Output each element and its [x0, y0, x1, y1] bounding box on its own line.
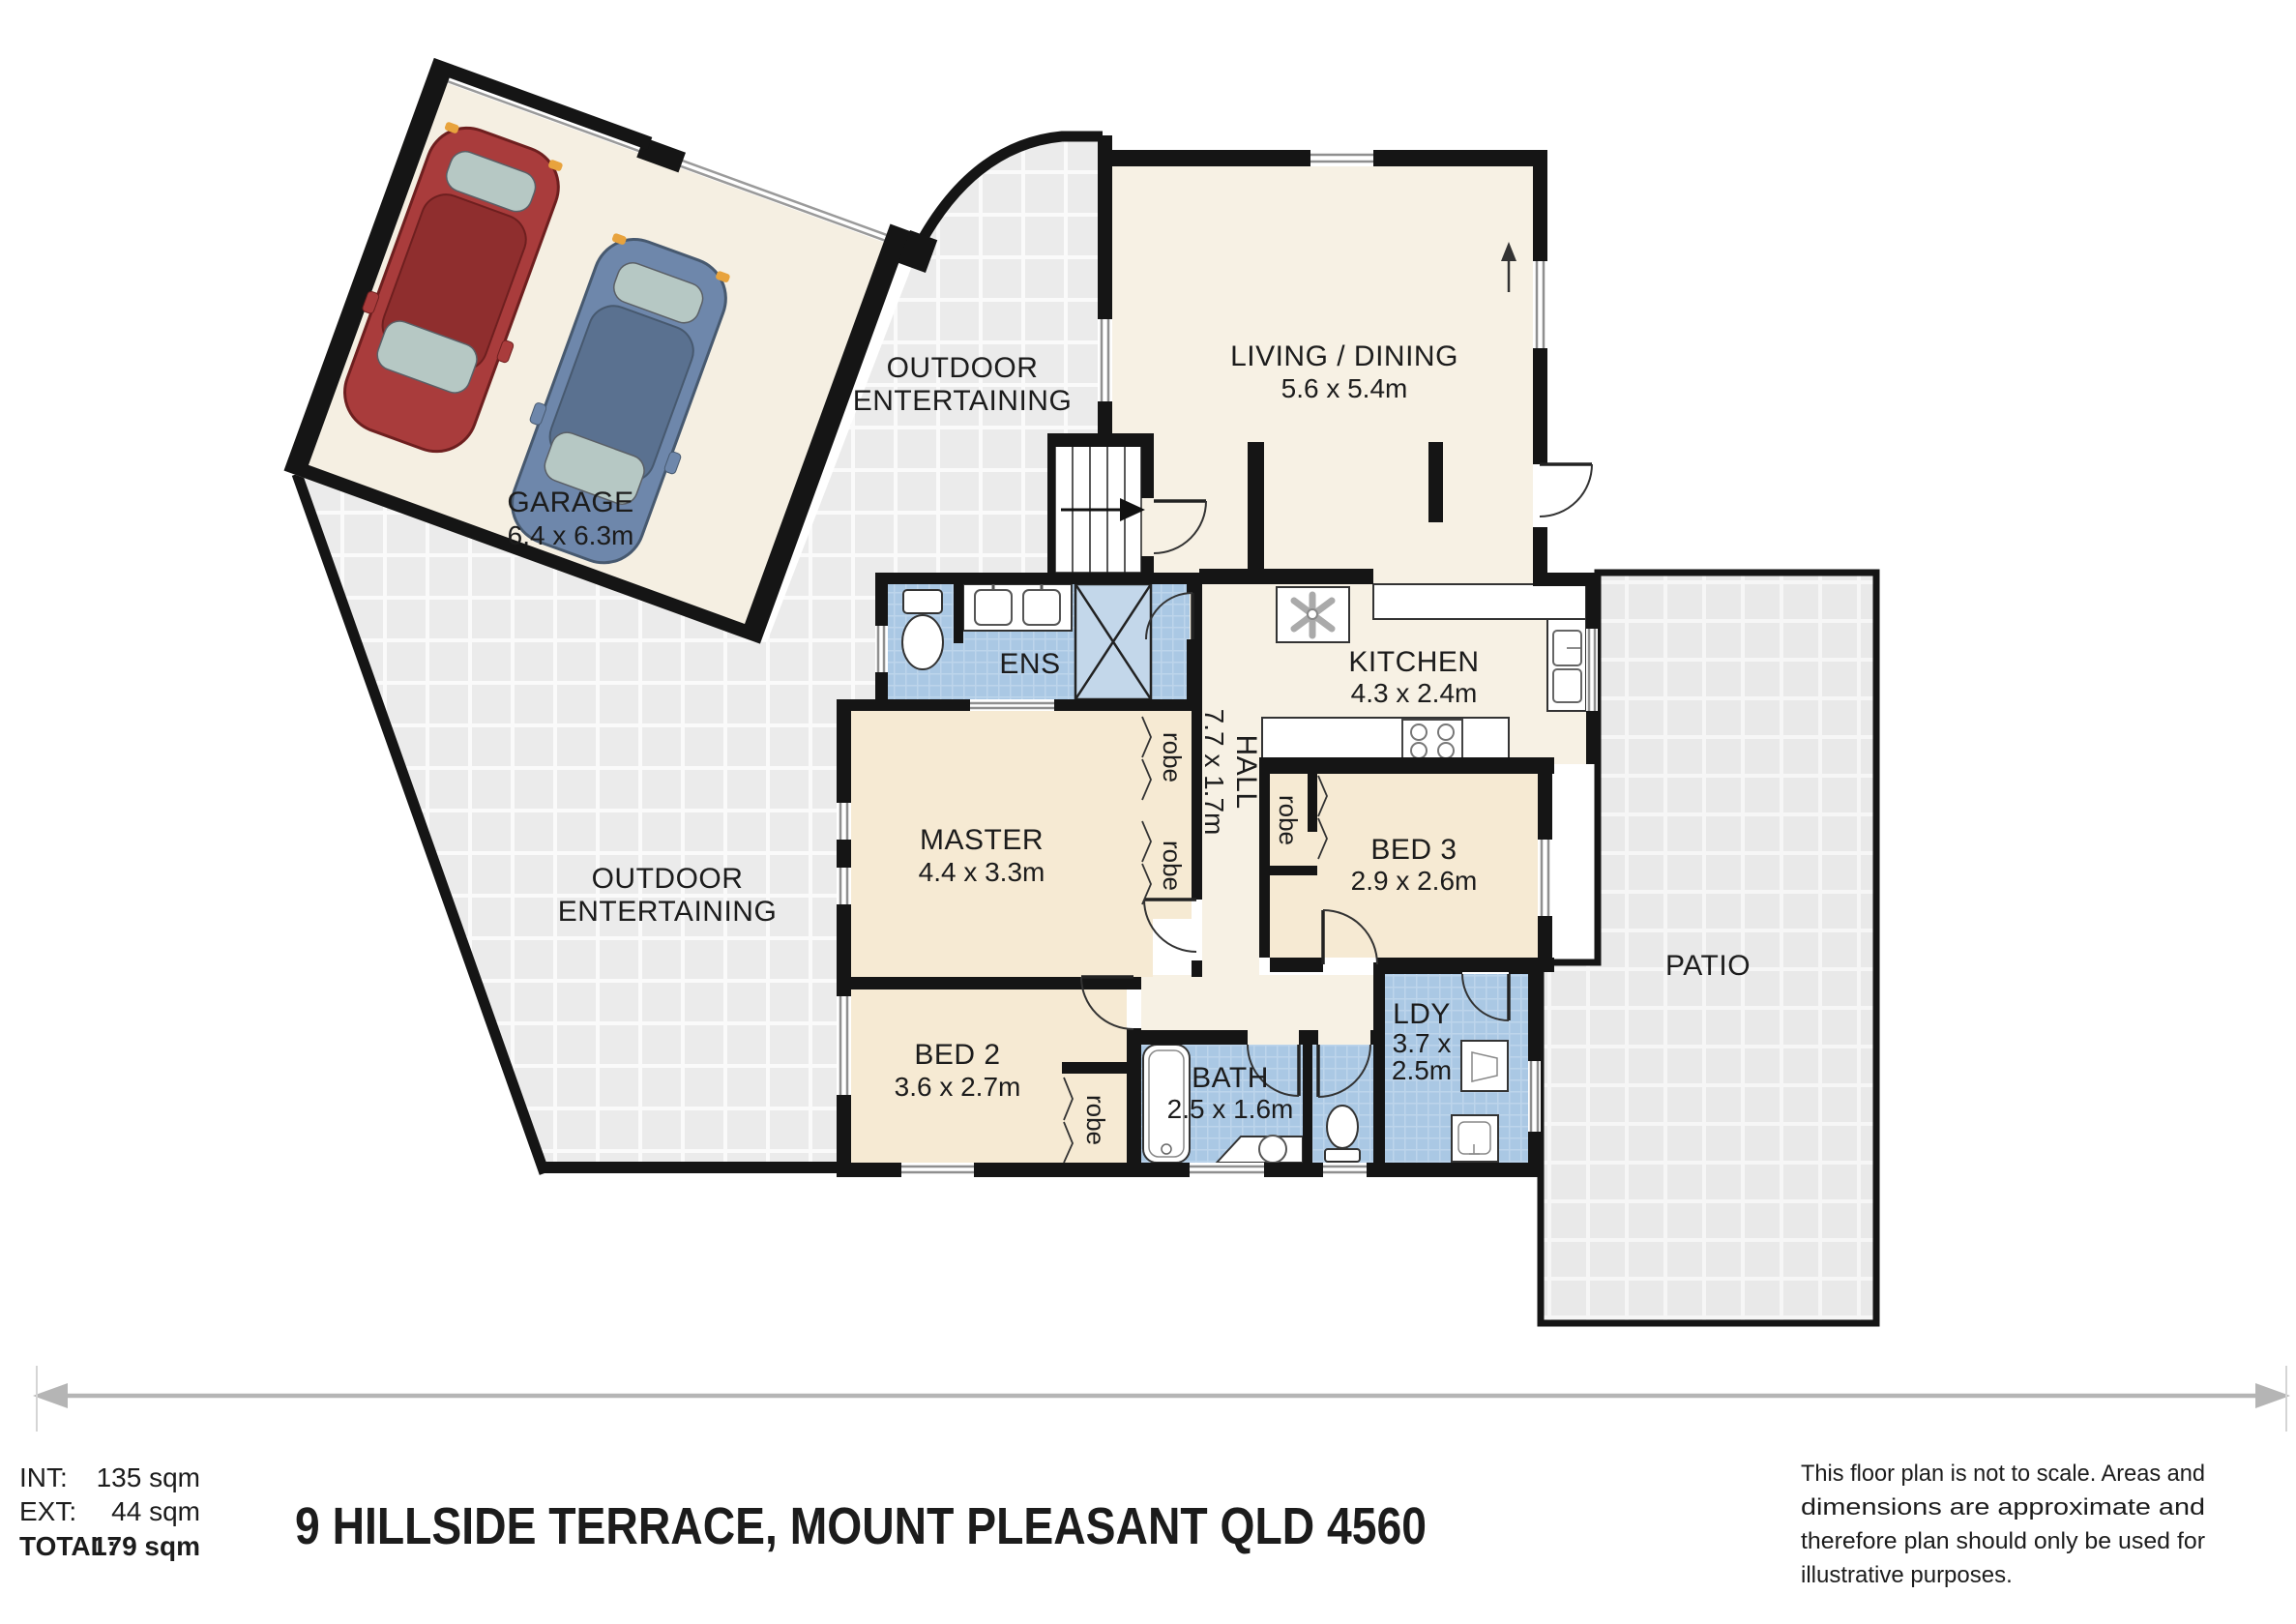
page-title: 9 HILLSIDE TERRACE, MOUNT PLEASANT QLD 4… — [295, 1497, 1427, 1555]
ensuite-label: ENS — [999, 648, 1060, 680]
patio-door-swing — [1540, 464, 1592, 517]
window — [875, 626, 888, 672]
window — [837, 996, 851, 1095]
bed3-robe-label: robe — [1274, 795, 1303, 845]
arrow-right-icon — [2255, 1383, 2290, 1408]
bed2-label: BED 2 — [914, 1039, 1000, 1071]
floor-plan: GARAGE 6.4 x 6.3m OUTDOOR ENTERTAINING O… — [0, 0, 2296, 1624]
int-value: 135 sqm — [97, 1462, 200, 1492]
garage-dims: 6.4 x 6.3m — [508, 520, 634, 550]
outdoor-top-label-line2: ENTERTAINING — [853, 385, 1073, 417]
master-robe2-label: robe — [1158, 841, 1187, 891]
ext-value: 44 sqm — [111, 1496, 200, 1526]
disclaimer-line3: therefore plan should only be used for — [1801, 1528, 2205, 1554]
window — [837, 803, 851, 840]
living-dims: 5.6 x 5.4m — [1281, 373, 1408, 403]
window — [1586, 629, 1598, 711]
living-label: LIVING / DINING — [1230, 340, 1458, 372]
area-summary: INT: 135 sqm EXT: 44 sqm TOTAL: 179 sqm — [19, 1462, 200, 1561]
bath-label: BATH — [1192, 1062, 1269, 1094]
master-dims: 4.4 x 3.3m — [919, 857, 1045, 887]
ceiling-fan-icon — [1277, 587, 1349, 642]
washing-machine-icon — [1461, 1041, 1508, 1091]
stairs-icon — [1055, 445, 1145, 573]
outdoor-top-label-line1: OUTDOOR — [887, 352, 1039, 384]
hall-dims: 7.7 x 1.7m — [1199, 709, 1229, 836]
kitchen-label: KITCHEN — [1348, 646, 1479, 678]
window — [1098, 319, 1112, 401]
sink-icon — [975, 590, 1012, 625]
wc-toilet-icon — [1325, 1106, 1360, 1162]
bed3-label: BED 3 — [1370, 834, 1457, 866]
outdoor-left-label-line1: OUTDOOR — [592, 863, 744, 895]
hall-label: HALL — [1230, 734, 1262, 809]
toilet-icon — [902, 590, 943, 669]
disclaimer-line4: illustrative purposes. — [1801, 1562, 2013, 1588]
patio-label: PATIO — [1665, 950, 1751, 982]
shower-icon — [1075, 584, 1151, 699]
laundry-dims-line2: 2.5m — [1392, 1055, 1452, 1085]
kitchen-island-bench — [1262, 718, 1509, 764]
window — [837, 868, 851, 904]
outdoor-left-label-line2: ENTERTAINING — [558, 896, 778, 928]
ext-label: EXT: — [19, 1496, 76, 1526]
disclaimer: This floor plan is not to scale. Areas a… — [1801, 1461, 2205, 1588]
window — [1528, 1061, 1541, 1132]
basin-icon — [1259, 1136, 1286, 1163]
sink-icon — [1023, 590, 1060, 625]
scale-line — [33, 1366, 2290, 1432]
kitchen-counter — [1373, 584, 1586, 619]
disclaimer-line1: This floor plan is not to scale. Areas a… — [1801, 1461, 2205, 1487]
sliding-door — [970, 699, 1054, 711]
bed2-robe-label: robe — [1081, 1095, 1110, 1145]
int-label: INT: — [19, 1462, 68, 1492]
bed3-dims: 2.9 x 2.6m — [1351, 866, 1478, 896]
bed2-dims: 3.6 x 2.7m — [895, 1072, 1021, 1102]
total-value: 179 sqm — [92, 1531, 200, 1561]
disclaimer-line2: dimensions are approximate and — [1801, 1494, 2205, 1521]
window — [1190, 1163, 1264, 1177]
laundry-dims-line1: 3.7 x — [1393, 1028, 1452, 1058]
window — [1310, 150, 1373, 166]
window — [901, 1163, 974, 1177]
bath-dims: 2.5 x 1.6m — [1167, 1094, 1294, 1124]
garage-label: GARAGE — [507, 487, 633, 518]
window — [1538, 840, 1552, 916]
floor-plan-page: GARAGE 6.4 x 6.3m OUTDOOR ENTERTAINING O… — [0, 0, 2296, 1624]
kitchen-dims: 4.3 x 2.4m — [1351, 678, 1478, 708]
window — [1323, 1163, 1367, 1177]
window — [1533, 261, 1547, 348]
arrow-left-icon — [33, 1383, 68, 1408]
cooktop-icon — [1402, 720, 1462, 762]
master-label: MASTER — [920, 824, 1044, 856]
laundry-label: LDY — [1393, 998, 1451, 1030]
master-robe1-label: robe — [1158, 732, 1187, 782]
